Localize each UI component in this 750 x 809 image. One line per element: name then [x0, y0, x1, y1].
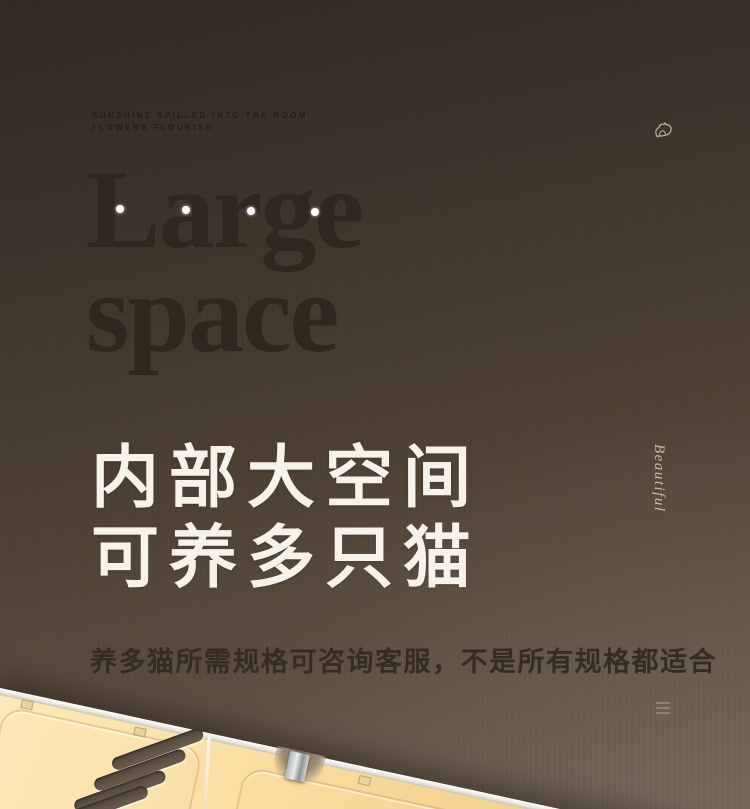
title-line1: Large	[86, 158, 362, 262]
panel-clip	[358, 775, 372, 786]
main-heading: 内部大空间 可养多只猫	[91, 438, 481, 598]
side-label: Beautiful	[650, 444, 667, 534]
heading-line1: 内部大空间	[91, 438, 481, 518]
triple-bars-icon	[656, 702, 670, 717]
title-line2: space	[86, 262, 362, 366]
tagline-line2: FLOWERS FLOURISH	[92, 122, 308, 134]
caption-note: 养多猫所需规格可咨询客服，不是所有规格都适合	[90, 640, 717, 679]
tagline: SUNSHINE SPILLED INTO THE ROOM FLOWERS F…	[92, 110, 308, 134]
heading-line2: 可养多只猫	[91, 518, 481, 598]
decor-dot	[311, 208, 319, 216]
product-poster: SUNSHINE SPILLED INTO THE ROOM FLOWERS F…	[0, 0, 750, 809]
tagline-line1: SUNSHINE SPILLED INTO THE ROOM	[92, 110, 308, 122]
product-photo-cage-top	[0, 688, 750, 809]
panel-seam	[197, 736, 211, 809]
decor-dot	[247, 207, 255, 215]
page-title: Large space	[86, 158, 362, 366]
decor-dot	[182, 206, 190, 214]
hinge-metal-bracket	[284, 751, 309, 783]
cat-icon	[652, 118, 676, 142]
decor-dot	[116, 205, 124, 213]
